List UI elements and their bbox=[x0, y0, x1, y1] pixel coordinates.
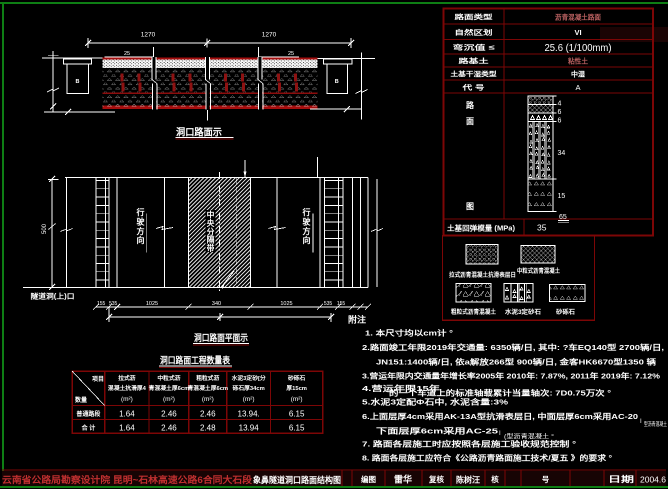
svg-text:路面类型: 路面类型 bbox=[455, 12, 494, 21]
svg-text:(m²): (m²) bbox=[121, 396, 133, 403]
svg-text:隧道洞(上)口: 隧道洞(上)口 bbox=[31, 292, 75, 301]
svg-text:中湿: 中湿 bbox=[571, 70, 585, 79]
svg-text:行: 行 bbox=[302, 207, 311, 217]
svg-text:6.上面层厚4cm采用AK-13A型抗滑表层日, 中面层厚6: 6.上面层厚4cm采用AK-13A型抗滑表层日, 中面层厚6cm采用AC-20 bbox=[362, 412, 638, 421]
svg-text:VI: VI bbox=[574, 28, 581, 37]
svg-text:1025: 1025 bbox=[280, 301, 292, 307]
svg-text:65: 65 bbox=[559, 214, 567, 221]
svg-text:6: 6 bbox=[558, 109, 562, 116]
svg-text:35: 35 bbox=[537, 223, 547, 233]
svg-text:弯沉值 ≤: 弯沉值 ≤ bbox=[453, 43, 496, 52]
svg-text:青混凝土厚6cm: 青混凝土厚6cm bbox=[149, 384, 190, 392]
svg-text:B: B bbox=[76, 79, 80, 85]
svg-text:驶: 驶 bbox=[303, 216, 312, 226]
svg-text:1025: 1025 bbox=[146, 301, 158, 307]
svg-text:拉式沥青混凝土抗滑表层日: 拉式沥青混凝土抗滑表层日 bbox=[449, 271, 516, 279]
svg-text:图: 图 bbox=[466, 202, 474, 211]
svg-text:沥青混凝土路面: 沥青混凝土路面 bbox=[555, 13, 601, 22]
svg-text:粗粒式沥: 粗粒式沥 bbox=[196, 374, 219, 382]
svg-text:535: 535 bbox=[109, 301, 118, 307]
svg-text:号: 号 bbox=[542, 475, 550, 484]
svg-text:洞口路面平面示: 洞口路面平面示 bbox=[194, 332, 248, 343]
svg-text:方: 方 bbox=[137, 226, 145, 236]
svg-text:洞口路面工程数量表: 洞口路面工程数量表 bbox=[160, 355, 231, 366]
svg-text:土基干湿类型: 土基干湿类型 bbox=[451, 69, 498, 78]
svg-text:中粒式沥青混凝土: 中粒式沥青混凝土 bbox=[517, 267, 560, 275]
svg-text:1270: 1270 bbox=[262, 32, 277, 39]
svg-text:核: 核 bbox=[491, 474, 499, 484]
svg-text:中粒式沥: 中粒式沥 bbox=[157, 374, 180, 382]
svg-text:自然区划: 自然区划 bbox=[455, 28, 494, 37]
svg-text:水泥3定砂石: 水泥3定砂石 bbox=[505, 308, 541, 316]
svg-text:青混凝土厚6cm: 青混凝土厚6cm bbox=[188, 384, 229, 392]
svg-text:厚15cm: 厚15cm bbox=[286, 384, 307, 392]
svg-text:雷华: 雷华 bbox=[394, 474, 412, 485]
svg-text:砂砾石: 砂砾石 bbox=[287, 374, 306, 382]
svg-text:2.46: 2.46 bbox=[161, 410, 177, 419]
svg-text:(m²): (m²) bbox=[202, 396, 214, 403]
svg-text:普通路段: 普通路段 bbox=[76, 410, 100, 418]
svg-text:2004.6: 2004.6 bbox=[640, 475, 666, 485]
svg-text:日期: 日期 bbox=[608, 474, 634, 484]
svg-text:驶: 驶 bbox=[137, 216, 146, 226]
svg-text:2.46: 2.46 bbox=[200, 410, 216, 419]
svg-text:陈树汪: 陈树汪 bbox=[456, 475, 480, 485]
svg-text:向: 向 bbox=[303, 235, 311, 245]
svg-text:面: 面 bbox=[466, 117, 474, 126]
svg-text:1.64: 1.64 bbox=[119, 410, 135, 419]
svg-text:A: A bbox=[575, 83, 580, 92]
svg-text:水泥3定砂[分: 水泥3定砂[分 bbox=[232, 374, 266, 382]
svg-text:5.水泥3定配Φ石中, 水泥含量:3%: 5.水泥3定配Φ石中, 水泥含量:3% bbox=[362, 398, 509, 407]
svg-text:(m²): (m²) bbox=[291, 396, 303, 403]
svg-text:155: 155 bbox=[337, 301, 346, 307]
svg-text:25: 25 bbox=[288, 51, 294, 57]
svg-text:6.15: 6.15 bbox=[289, 410, 305, 419]
svg-text:34: 34 bbox=[558, 150, 566, 157]
svg-text:附注: 附注 bbox=[348, 315, 367, 325]
svg-text:15: 15 bbox=[558, 193, 566, 200]
svg-text:13.94: 13.94 bbox=[239, 424, 260, 433]
svg-text:13.94.: 13.94. bbox=[238, 410, 260, 419]
svg-text:下面层厚6cm采用AC-25: 下面层厚6cm采用AC-25 bbox=[376, 427, 498, 436]
svg-text:砾石厚34cm: 砾石厚34cm bbox=[233, 384, 265, 392]
svg-text:复核: 复核 bbox=[428, 474, 444, 484]
svg-text:JN151:1400辆/日, 依a解放266型 900辆/日: JN151:1400辆/日, 依a解放266型 900辆/日, 金客HK6670… bbox=[376, 358, 657, 367]
svg-text:合 计: 合 计 bbox=[82, 424, 96, 432]
svg-text:8. 路面各层施工应符合《公路沥青路面施工技术/夏五 》的: 8. 路面各层施工应符合《公路沥青路面施工技术/夏五 》的要求 ° bbox=[362, 454, 612, 463]
svg-text:500: 500 bbox=[42, 223, 48, 234]
svg-text:粘性土: 粘性土 bbox=[568, 57, 588, 66]
svg-text:带: 带 bbox=[207, 243, 215, 253]
svg-text:6: 6 bbox=[558, 118, 562, 125]
svg-text:型沥青混凝土: 型沥青混凝土 bbox=[644, 420, 667, 428]
svg-text:象鼻隧道洞口路面结构图: 象鼻隧道洞口路面结构图 bbox=[253, 475, 341, 485]
svg-text:25.6 (1/100mm): 25.6 (1/100mm) bbox=[545, 43, 612, 54]
svg-text:25: 25 bbox=[124, 51, 130, 57]
svg-text:拉式沥: 拉式沥 bbox=[118, 374, 136, 382]
svg-text:155: 155 bbox=[97, 301, 106, 307]
svg-text:B: B bbox=[335, 79, 339, 85]
svg-text:1270: 1270 bbox=[141, 32, 156, 39]
svg-text:方: 方 bbox=[303, 226, 311, 236]
svg-text:向: 向 bbox=[137, 235, 145, 245]
svg-text:数量: 数量 bbox=[75, 396, 87, 404]
svg-text:粗粒式沥青混凝土: 粗粒式沥青混凝土 bbox=[451, 308, 496, 316]
svg-text:2.46: 2.46 bbox=[161, 424, 177, 433]
svg-text:路基土: 路基土 bbox=[459, 56, 490, 65]
svg-text:4: 4 bbox=[558, 101, 562, 108]
svg-text:编图: 编图 bbox=[361, 474, 376, 484]
svg-text:2.48: 2.48 bbox=[200, 424, 216, 433]
svg-text:路: 路 bbox=[466, 100, 475, 110]
svg-text:洞口路面示: 洞口路面示 bbox=[175, 127, 222, 139]
svg-text:行: 行 bbox=[136, 207, 145, 217]
svg-text:1. 本尺寸均以cm计 °: 1. 本尺寸均以cm计 ° bbox=[365, 329, 453, 338]
svg-text:混凝土抗滑厚4: 混凝土抗滑厚4 bbox=[108, 384, 147, 392]
svg-text:535: 535 bbox=[324, 301, 333, 307]
svg-text:土基回弹模量 (MPa): 土基回弹模量 (MPa) bbox=[447, 224, 515, 233]
svg-text:云南省公路局勘察设计院 昆明~石林高速公路6合同大石段: 云南省公路局勘察设计院 昆明~石林高速公路6合同大石段 bbox=[2, 474, 253, 485]
svg-text:3.营运年限内交通量年增长率2005年 2010年: 7.8: 3.营运年限内交通量年增长率2005年 2010年: 7.87%, 2011年 … bbox=[362, 372, 660, 381]
svg-text:6.15: 6.15 bbox=[289, 424, 305, 433]
svg-text:的一个车道上的标准轴载累计当量轴次: 7D0.75万次 °: 的一个车道上的标准轴载累计当量轴次: 7D0.75万次 ° bbox=[389, 389, 611, 398]
svg-text:砂砾石: 砂砾石 bbox=[555, 308, 575, 316]
svg-text:(m²): (m²) bbox=[163, 396, 175, 403]
svg-text:1.64: 1.64 bbox=[119, 424, 135, 433]
svg-text:340: 340 bbox=[212, 301, 221, 307]
svg-text:项目: 项目 bbox=[92, 375, 104, 383]
svg-text:(m²): (m²) bbox=[243, 396, 255, 403]
svg-text:2.路面竣工年限2019年交通量: 6350辆/日, 其中:: 2.路面竣工年限2019年交通量: 6350辆/日, 其中: ?车EQ140型 … bbox=[362, 343, 664, 352]
svg-text:7. 路面各层施工时应按照各层施工验收规范控制 °: 7. 路面各层施工时应按照各层施工验收规范控制 ° bbox=[362, 440, 576, 449]
svg-text:(型沥青混凝土 °: (型沥青混凝土 ° bbox=[504, 433, 555, 441]
svg-text:代 号: 代 号 bbox=[461, 83, 485, 92]
